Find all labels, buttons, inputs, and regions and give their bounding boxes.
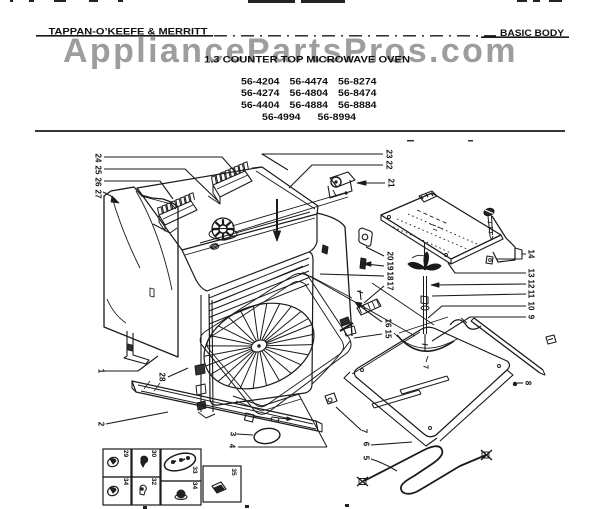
svg-text:7: 7 <box>360 429 369 434</box>
svg-text:2: 2 <box>97 422 106 427</box>
svg-text:56-8994: 56-8994 <box>318 112 357 122</box>
svg-text:BASIC BODY: BASIC BODY <box>500 28 564 38</box>
svg-text:56-4204: 56-4204 <box>241 77 280 87</box>
svg-text:7: 7 <box>422 365 429 369</box>
svg-text:16: 16 <box>384 319 393 328</box>
svg-text:3: 3 <box>229 432 238 437</box>
svg-text:35: 35 <box>230 468 237 476</box>
svg-text:34: 34 <box>122 478 129 486</box>
svg-text:24: 24 <box>94 154 103 163</box>
svg-text:56-4474: 56-4474 <box>290 77 329 87</box>
svg-text:5: 5 <box>362 456 371 461</box>
svg-text:9: 9 <box>527 315 536 320</box>
svg-text:TAPPAN-O’KEEFE & MERRITT: TAPPAN-O’KEEFE & MERRITT <box>49 27 209 37</box>
svg-text:18: 18 <box>386 272 395 281</box>
svg-text:26: 26 <box>94 178 103 187</box>
svg-text:29: 29 <box>122 450 129 458</box>
svg-text:56-4994: 56-4994 <box>262 112 301 122</box>
svg-text:1.3 COUNTER TOP MICROWAVE OVEN: 1.3 COUNTER TOP MICROWAVE OVEN <box>204 55 410 66</box>
svg-text:14: 14 <box>527 250 536 259</box>
svg-text:19: 19 <box>386 262 395 271</box>
svg-text:27: 27 <box>94 190 103 199</box>
svg-text:56-4884: 56-4884 <box>290 100 329 110</box>
svg-text:21: 21 <box>387 179 396 188</box>
svg-text:15: 15 <box>384 330 393 339</box>
svg-text:23: 23 <box>385 150 394 159</box>
svg-text:34: 34 <box>191 482 198 490</box>
svg-text:8: 8 <box>524 381 533 386</box>
svg-text:22: 22 <box>385 161 394 170</box>
svg-text:10: 10 <box>527 302 536 311</box>
svg-text:56-4404: 56-4404 <box>241 100 280 110</box>
svg-text:12: 12 <box>527 280 536 289</box>
svg-text:6: 6 <box>362 442 371 447</box>
svg-text:56-8474: 56-8474 <box>338 88 377 98</box>
svg-text:56-4804: 56-4804 <box>290 88 329 98</box>
svg-text:32: 32 <box>150 478 157 486</box>
svg-text:11: 11 <box>527 290 536 299</box>
svg-text:17: 17 <box>386 282 395 291</box>
svg-text:1: 1 <box>97 369 106 374</box>
svg-text:30: 30 <box>150 450 157 458</box>
svg-text:56-8274: 56-8274 <box>338 77 377 87</box>
svg-text:33: 33 <box>191 466 198 474</box>
svg-text:28: 28 <box>158 373 167 382</box>
svg-text:13: 13 <box>527 269 536 278</box>
svg-text:56-8884: 56-8884 <box>338 100 377 110</box>
svg-text:4: 4 <box>228 444 237 449</box>
svg-text:25: 25 <box>94 166 103 175</box>
svg-text:20: 20 <box>386 252 395 261</box>
svg-text:56-4274: 56-4274 <box>241 88 280 98</box>
